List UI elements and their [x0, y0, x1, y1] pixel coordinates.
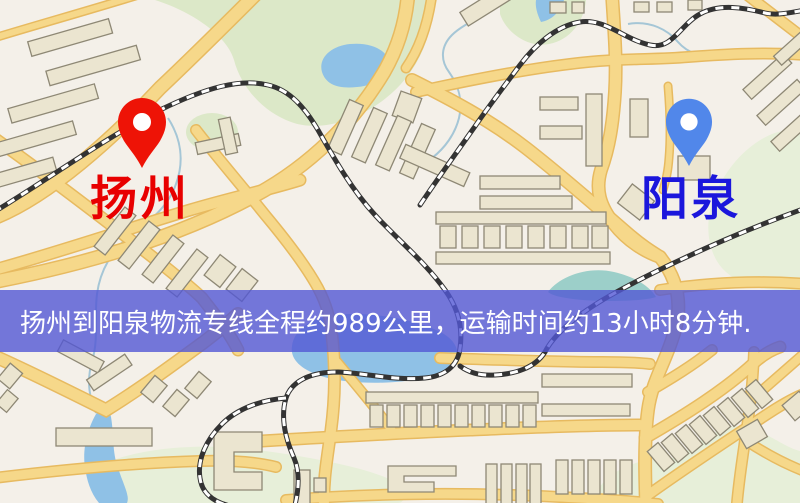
- origin-pin-icon[interactable]: [118, 98, 166, 168]
- route-info-banner: 扬州到阳泉物流专线全程约989公里，运输时间约13小时8分钟.: [0, 290, 800, 352]
- river-streak: [84, 409, 128, 503]
- origin-city-label: 扬州: [90, 176, 190, 223]
- route-info-text: 扬州到阳泉物流专线全程约989公里，运输时间约13小时8分钟.: [0, 303, 752, 340]
- destination-city-label: 阳泉: [641, 176, 741, 223]
- logistics-route-map: 扬州 阳泉 扬州到阳泉物流专线全程约989公里，运输时间约13小时8分钟.: [0, 0, 800, 503]
- map-canvas: [0, 0, 800, 503]
